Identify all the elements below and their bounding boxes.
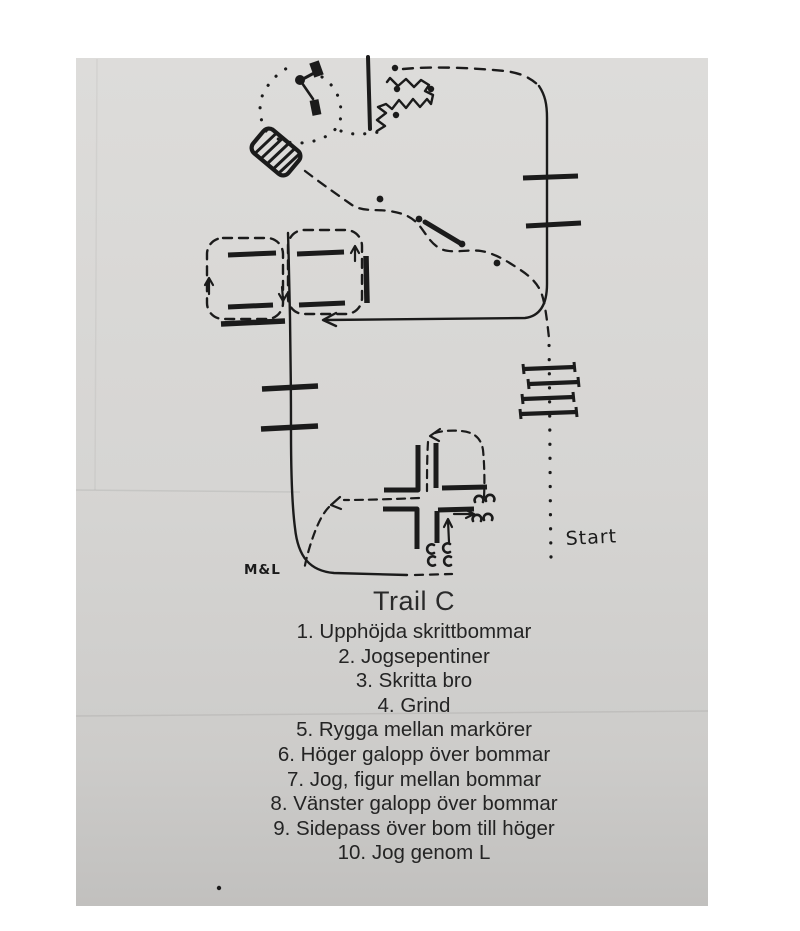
initials-label: M&L	[244, 562, 281, 578]
caption-block: Trail C 1. Upphöjda skrittbommar 2. Jogs…	[114, 586, 714, 866]
obstacle-item: 4. Grind	[114, 694, 714, 719]
pattern-title: Trail C	[114, 586, 714, 617]
screenshot: Start M&L Trail C 1. Upphöjda skrittbomm…	[0, 0, 800, 931]
obstacle-item: 10. Jog genom L	[114, 841, 714, 866]
obstacle-item: 1. Upphöjda skrittbommar	[114, 620, 714, 645]
start-label: Start	[565, 525, 618, 550]
obstacle-list: 1. Upphöjda skrittbommar 2. Jogsepentine…	[114, 620, 714, 866]
obstacle-item: 3. Skritta bro	[114, 669, 714, 694]
ink-speck	[217, 886, 221, 890]
obstacle-item: 2. Jogsepentiner	[114, 645, 714, 670]
obstacle-item: 6. Höger galopp över bommar	[114, 743, 714, 768]
obstacle-item: 5. Rygga mellan markörer	[114, 718, 714, 743]
obstacle-item: 8. Vänster galopp över bommar	[114, 792, 714, 817]
obstacle-item: 9. Sidepass över bom till höger	[114, 817, 714, 842]
obstacle-item: 7. Jog, figur mellan bommar	[114, 768, 714, 793]
divider-line	[368, 57, 370, 129]
